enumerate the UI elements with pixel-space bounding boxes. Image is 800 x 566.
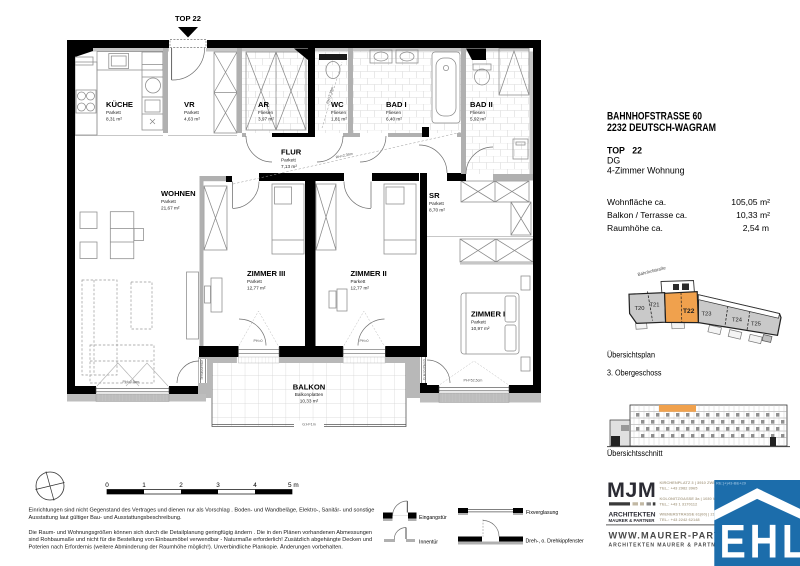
svg-text:WOHNEN: WOHNEN xyxy=(161,189,196,198)
svg-text:Parkett: Parkett xyxy=(281,158,297,163)
svg-text:1: 1 xyxy=(142,482,146,489)
svg-text:Parkett: Parkett xyxy=(471,320,487,325)
svg-text:Die Raum- und Wohnungsgrößen k: Die Raum- und Wohnungsgrößen können sich… xyxy=(29,530,373,536)
svg-text:7,13 m²: 7,13 m² xyxy=(281,164,297,169)
svg-text:Parkett: Parkett xyxy=(351,279,367,284)
svg-text:TOP 22: TOP 22 xyxy=(175,14,201,23)
svg-text:BAD II: BAD II xyxy=(470,100,493,109)
svg-text:TEL.: +43 2982 3965: TEL.: +43 2982 3965 xyxy=(660,486,699,491)
svg-text:Parkett: Parkett xyxy=(247,279,263,284)
svg-text:10,33 m²: 10,33 m² xyxy=(300,399,319,404)
svg-text:4: 4 xyxy=(253,482,257,489)
svg-text:T22: T22 xyxy=(683,308,695,315)
svg-text:MJM: MJM xyxy=(607,478,656,502)
svg-text:12,77 m²: 12,77 m² xyxy=(351,286,370,291)
svg-text:T21: T21 xyxy=(650,303,660,309)
svg-text:MAURER & PARTNER: MAURER & PARTNER xyxy=(609,518,656,523)
svg-text:T23: T23 xyxy=(702,312,712,318)
svg-text:5,92 m²: 5,92 m² xyxy=(470,117,486,122)
svg-text:Fliesen: Fliesen xyxy=(258,110,274,115)
svg-text:Parkett: Parkett xyxy=(106,110,122,115)
svg-text:WC: WC xyxy=(331,100,344,109)
svg-text:Balkonplatten: Balkonplatten xyxy=(295,392,324,397)
svg-text:DG: DG xyxy=(607,156,620,166)
svg-text:3: 3 xyxy=(216,482,220,489)
svg-text:WIENERSTRASSE 61(60) | 2100: WIENERSTRASSE 61(60) | 2100 xyxy=(660,512,721,517)
svg-text:5 m: 5 m xyxy=(288,482,299,489)
svg-text:21,67 m²: 21,67 m² xyxy=(161,206,180,211)
svg-text:Ausstattung laut gültiger Bau-: Ausstattung laut gültiger Bau- und Ausst… xyxy=(29,515,182,521)
svg-text:PH=0,5cm: PH=0,5cm xyxy=(123,380,140,384)
svg-text:Übersichtsplan: Übersichtsplan xyxy=(607,351,655,360)
svg-text:sind Rohbaumaße und nicht für: sind Rohbaumaße und nicht für die Bestel… xyxy=(29,537,373,543)
svg-text:4,63 m²: 4,63 m² xyxy=(184,117,200,122)
svg-text:ZIMMER II: ZIMMER II xyxy=(351,269,387,278)
svg-text:Parkett: Parkett xyxy=(429,201,445,206)
svg-text:Innentür: Innentür xyxy=(419,540,438,546)
svg-text:8,70 m²: 8,70 m² xyxy=(429,208,445,213)
svg-text:TOP 22: TOP 22 xyxy=(607,146,642,156)
svg-text:AR: AR xyxy=(258,100,269,109)
svg-text:3. Obergeschoss: 3. Obergeschoss xyxy=(607,369,662,378)
svg-text:0: 0 xyxy=(105,482,109,489)
svg-text:PH=0: PH=0 xyxy=(359,339,368,343)
svg-text:KIRCHENPLATZ 3 | 3910 ZWETTL: KIRCHENPLATZ 3 | 3910 ZWETTL xyxy=(660,480,724,485)
svg-text:10,97 m²: 10,97 m² xyxy=(471,326,490,331)
svg-text:T20: T20 xyxy=(635,306,645,312)
svg-text:Raumhöhe ca.: Raumhöhe ca. xyxy=(607,223,663,233)
svg-text:Einrichtungen sind nicht Gegen: Einrichtungen sind nicht Gegenstand des … xyxy=(29,508,375,514)
svg-text:VR: VR xyxy=(184,100,195,109)
svg-text:TEL.: +43 1 3170112: TEL.: +43 1 3170112 xyxy=(660,502,698,507)
svg-text:PH=0: PH=0 xyxy=(253,339,262,343)
svg-text:2: 2 xyxy=(179,482,183,489)
svg-text:Parkett: Parkett xyxy=(184,110,200,115)
svg-text:105,05 m²: 105,05 m² xyxy=(731,197,770,207)
svg-text:4-Zimmer Wohnung: 4-Zimmer Wohnung xyxy=(607,166,685,176)
svg-text:Dreh-, o. Drehkippfenster: Dreh-, o. Drehkippfenster xyxy=(526,539,585,545)
svg-text:10,33 m²: 10,33 m² xyxy=(736,210,770,220)
svg-text:ZIMMER III: ZIMMER III xyxy=(247,269,285,278)
svg-text:Fliesen: Fliesen xyxy=(386,110,402,115)
svg-text:Übersichtsschnitt: Übersichtsschnitt xyxy=(607,449,663,458)
svg-text:BALKON: BALKON xyxy=(293,383,325,392)
svg-text:RE:(+)43-BE+29: RE:(+)43-BE+29 xyxy=(716,481,747,486)
svg-text:TEL.: +43 2242 62148: TEL.: +43 2242 62148 xyxy=(660,517,701,522)
svg-text:Terrassentür: Terrassentür xyxy=(200,359,204,380)
svg-text:G:H=1m: G:H=1m xyxy=(302,423,315,427)
svg-text:ZIMMER I: ZIMMER I xyxy=(471,310,505,319)
svg-text:G:H=0 PH=0: G:H=0 PH=0 xyxy=(423,359,427,380)
svg-text:2,54 m: 2,54 m xyxy=(743,223,769,233)
svg-text:FLUR: FLUR xyxy=(281,148,302,157)
svg-text:Poterien nach Erfordernis (wei: Poterien nach Erfordernis (weitere Abmin… xyxy=(29,543,344,550)
svg-text:BAHNHOFSTRASSE 60: BAHNHOFSTRASSE 60 xyxy=(607,111,702,123)
svg-text:3,97 m²: 3,97 m² xyxy=(258,117,274,122)
svg-text:Parkett: Parkett xyxy=(161,199,177,204)
svg-text:EHL: EHL xyxy=(719,516,800,566)
svg-text:BAD I: BAD I xyxy=(386,100,407,109)
svg-text:12,77 m²: 12,77 m² xyxy=(247,286,266,291)
svg-text:Fliesen: Fliesen xyxy=(331,110,347,115)
svg-text:Wohnfläche ca.: Wohnfläche ca. xyxy=(607,197,666,207)
svg-text:1,81 m²: 1,81 m² xyxy=(331,117,347,122)
svg-text:T25: T25 xyxy=(751,322,761,328)
svg-text:PH=52,5cm: PH=52,5cm xyxy=(464,379,483,383)
svg-text:Balkon / Terrasse ca.: Balkon / Terrasse ca. xyxy=(607,210,687,220)
svg-text:8,31 m²: 8,31 m² xyxy=(106,117,122,122)
svg-text:KOLONITZGASSE 3a | 1030 WIEN: KOLONITZGASSE 3a | 1030 WIEN xyxy=(660,496,724,501)
svg-text:6,40 m²: 6,40 m² xyxy=(386,117,402,122)
svg-text:SR: SR xyxy=(429,191,440,200)
svg-text:2232 DEUTSCH-WAGRAM: 2232 DEUTSCH-WAGRAM xyxy=(607,122,716,134)
svg-text:Eingangstür: Eingangstür xyxy=(419,515,447,521)
svg-text:Fixverglasung: Fixverglasung xyxy=(526,510,558,516)
svg-text:KÜCHE: KÜCHE xyxy=(106,100,133,109)
svg-text:Fliesen: Fliesen xyxy=(470,110,486,115)
svg-text:T24: T24 xyxy=(732,318,743,324)
